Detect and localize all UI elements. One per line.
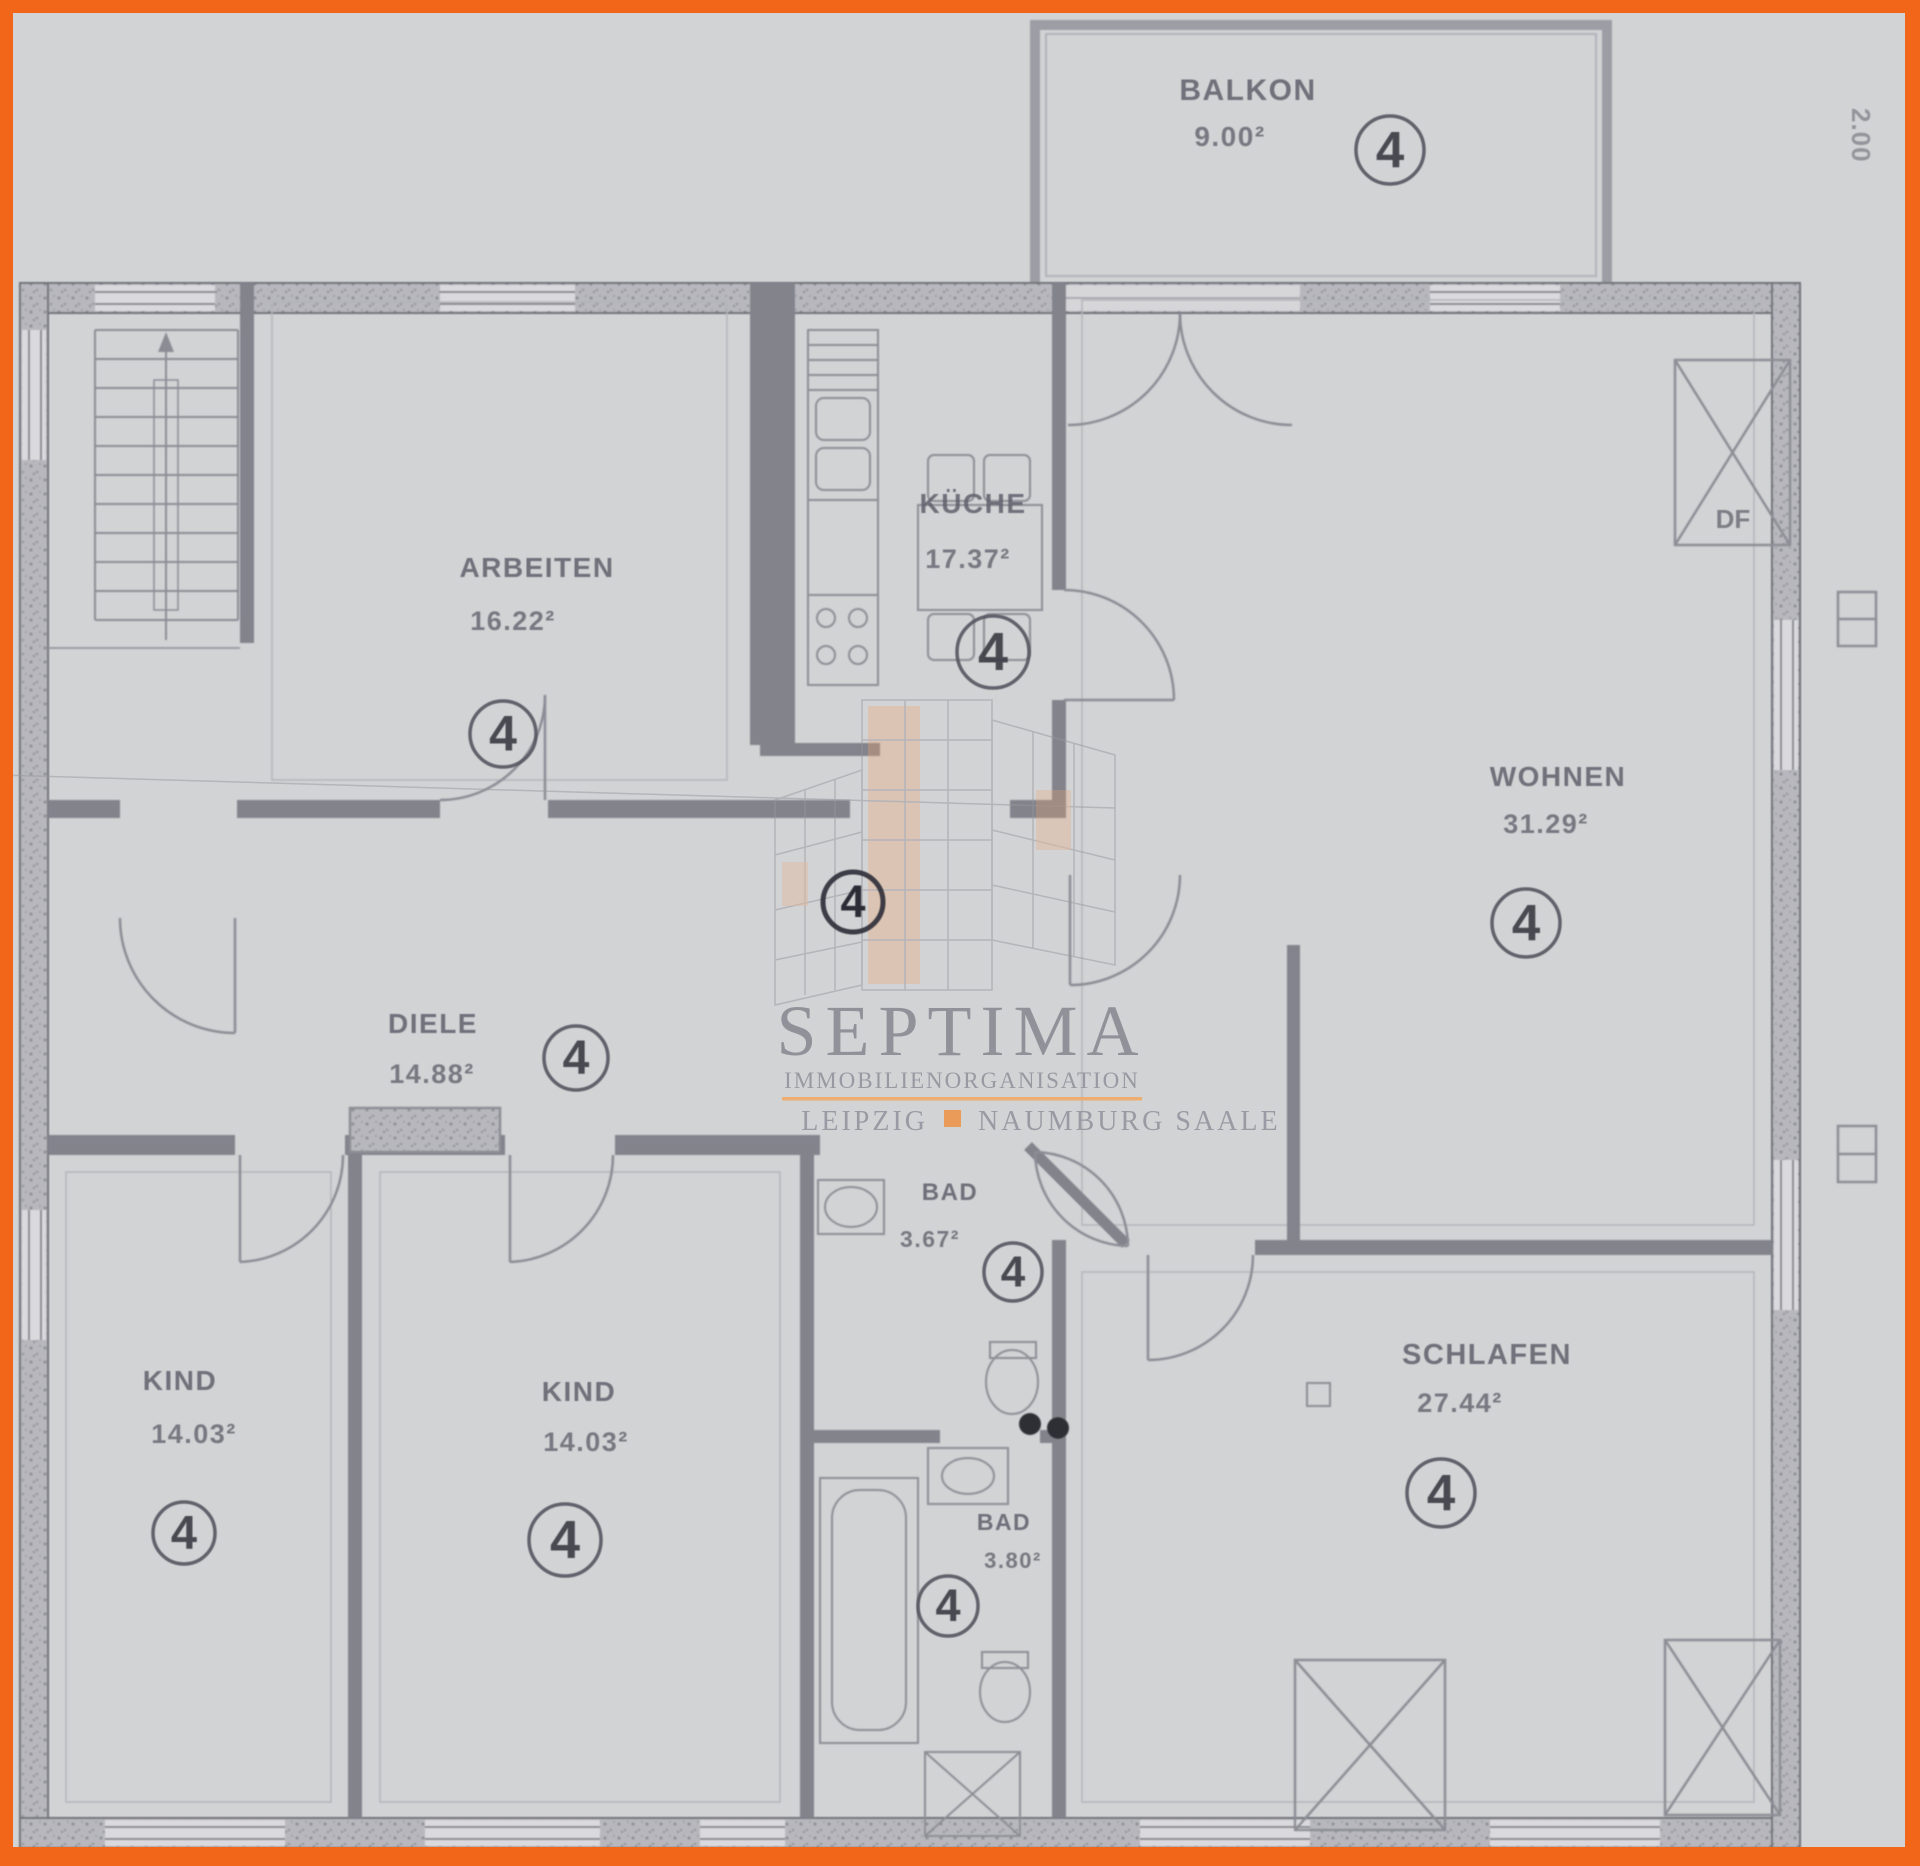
room-area: 16.22² [470,606,556,636]
doors [120,313,1292,1360]
floorplan-page: SEPTIMA IMMOBILIENORGANISATION LEIPZIG N… [0,0,1920,1866]
room-area: 3.67² [900,1226,960,1252]
unit-number: 4 [1001,1248,1026,1297]
duct-label: DF [1716,504,1751,534]
room-name: BALKON [1179,74,1316,107]
unit-number: 4 [1427,1464,1456,1521]
side-dimension-label: 2.00 [1846,108,1876,163]
room-name: WOHNEN [1490,761,1627,792]
watermark-brand: SEPTIMA [776,991,1147,1071]
bathroom-fixtures [818,1180,1069,1836]
watermark-city-right: NAUMBURG SAALE [978,1106,1281,1137]
watermark-city-left: LEIPZIG [801,1106,928,1137]
room-label-bad-unten: BAD3.80²4 [918,1509,1042,1636]
watermark: SEPTIMA IMMOBILIENORGANISATION LEIPZIG N… [0,700,1281,1137]
room-name: BAD [922,1179,979,1206]
room-name: DIELE [388,1008,478,1039]
room-area: 27.44² [1417,1388,1503,1418]
room-area: 9.00² [1194,121,1265,152]
room-area: 14.03² [543,1427,629,1457]
unit-number: 4 [840,876,865,927]
staircase [48,330,240,648]
floorplan-drawing: SEPTIMA IMMOBILIENORGANISATION LEIPZIG N… [0,0,1920,1866]
room-label-kueche: KÜCHE17.37²4 [919,488,1029,688]
room-label-arbeiten: ARBEITEN16.22²4 [459,552,614,767]
room-area: 14.03² [151,1419,237,1449]
room-label-kind-mitte: KIND14.03²4 [529,1376,629,1576]
room-area: 3.80² [984,1548,1042,1573]
unit-number: 4 [563,1032,590,1085]
unit-number: 4 [550,1510,580,1570]
room-label-balkon: BALKON9.00²4 [1179,74,1424,184]
room-name: SCHLAFEN [1402,1339,1572,1371]
unit-number: 4 [171,1506,197,1559]
room-area: 31.29² [1503,809,1589,839]
unit-number: 4 [978,622,1008,682]
room-name: ARBEITEN [459,552,614,583]
room-area: 17.37² [925,544,1011,574]
watermark-accent-line [782,1097,1142,1101]
balcony-walls [1030,20,1612,283]
room-name: BAD [977,1509,1031,1535]
room-name: KIND [143,1365,217,1396]
room-name: KÜCHE [919,488,1026,519]
room-area: 14.88² [389,1059,475,1089]
watermark-separator-square [944,1110,961,1127]
unit-number: 4 [1376,121,1405,178]
unit-number: 4 [935,1580,960,1631]
watermark-subtitle: IMMOBILIENORGANISATION [784,1068,1140,1093]
room-label-diele: DIELE14.88²4 [388,1008,608,1090]
unit-number: 4 [489,706,517,762]
room-label-kind-links: KIND14.03²4 [143,1365,237,1564]
room-label-wohnen: WOHNEN31.29²4 [1490,761,1627,957]
kitchen-fixtures [808,330,878,685]
unit-number: 4 [1512,894,1541,951]
room-label-schlafen: SCHLAFEN27.44²4 [1402,1339,1572,1527]
room-name: KIND [542,1376,616,1407]
watermark-building-logo [0,700,1115,1005]
room-label-bad-oben: BAD3.67²4 [900,1179,1042,1301]
